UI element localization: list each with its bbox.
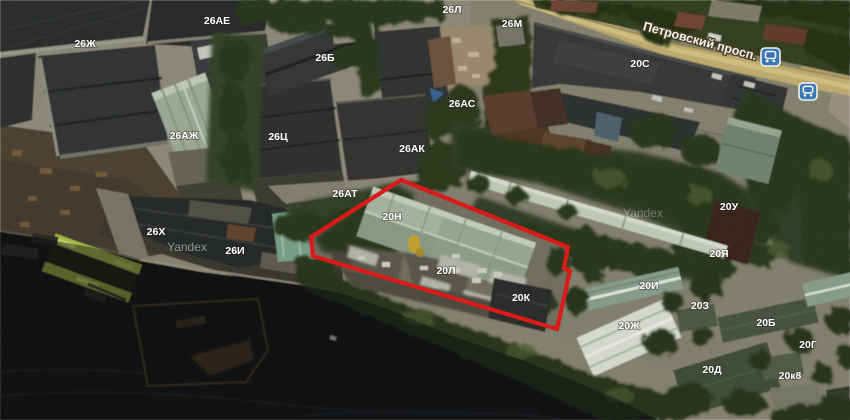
svg-text:26Ж: 26Ж [74,38,96,50]
svg-text:20И: 20И [639,280,658,292]
svg-text:20Я: 20Я [709,248,728,260]
svg-text:26Х: 26Х [147,226,166,238]
svg-text:26АС: 26АС [449,98,476,110]
svg-text:20З: 20З [691,300,710,312]
svg-text:26Л: 26Л [442,4,461,16]
svg-text:26М: 26М [502,18,523,30]
svg-text:20Л: 20Л [436,265,455,277]
svg-text:26АК: 26АК [399,143,425,155]
svg-text:26АТ: 26АТ [332,188,358,200]
svg-text:20С: 20С [630,58,650,70]
svg-text:26АЕ: 26АЕ [204,15,230,27]
svg-text:26Ц: 26Ц [268,131,288,143]
svg-text:20У: 20У [720,201,739,213]
svg-text:20Ж: 20Ж [618,320,640,332]
svg-text:20Д: 20Д [702,364,722,376]
svg-text:20Б: 20Б [756,317,776,329]
svg-text:Yandex: Yandex [623,206,663,220]
svg-text:26Б: 26Б [315,52,335,64]
svg-text:20к8: 20к8 [779,370,802,382]
svg-text:26АЖ: 26АЖ [170,130,199,142]
svg-text:20Н: 20Н [382,211,401,223]
svg-text:20К: 20К [512,292,531,304]
svg-text:Yandex: Yandex [167,240,207,254]
svg-text:26И: 26И [225,245,244,257]
svg-text:20Г: 20Г [799,339,817,351]
